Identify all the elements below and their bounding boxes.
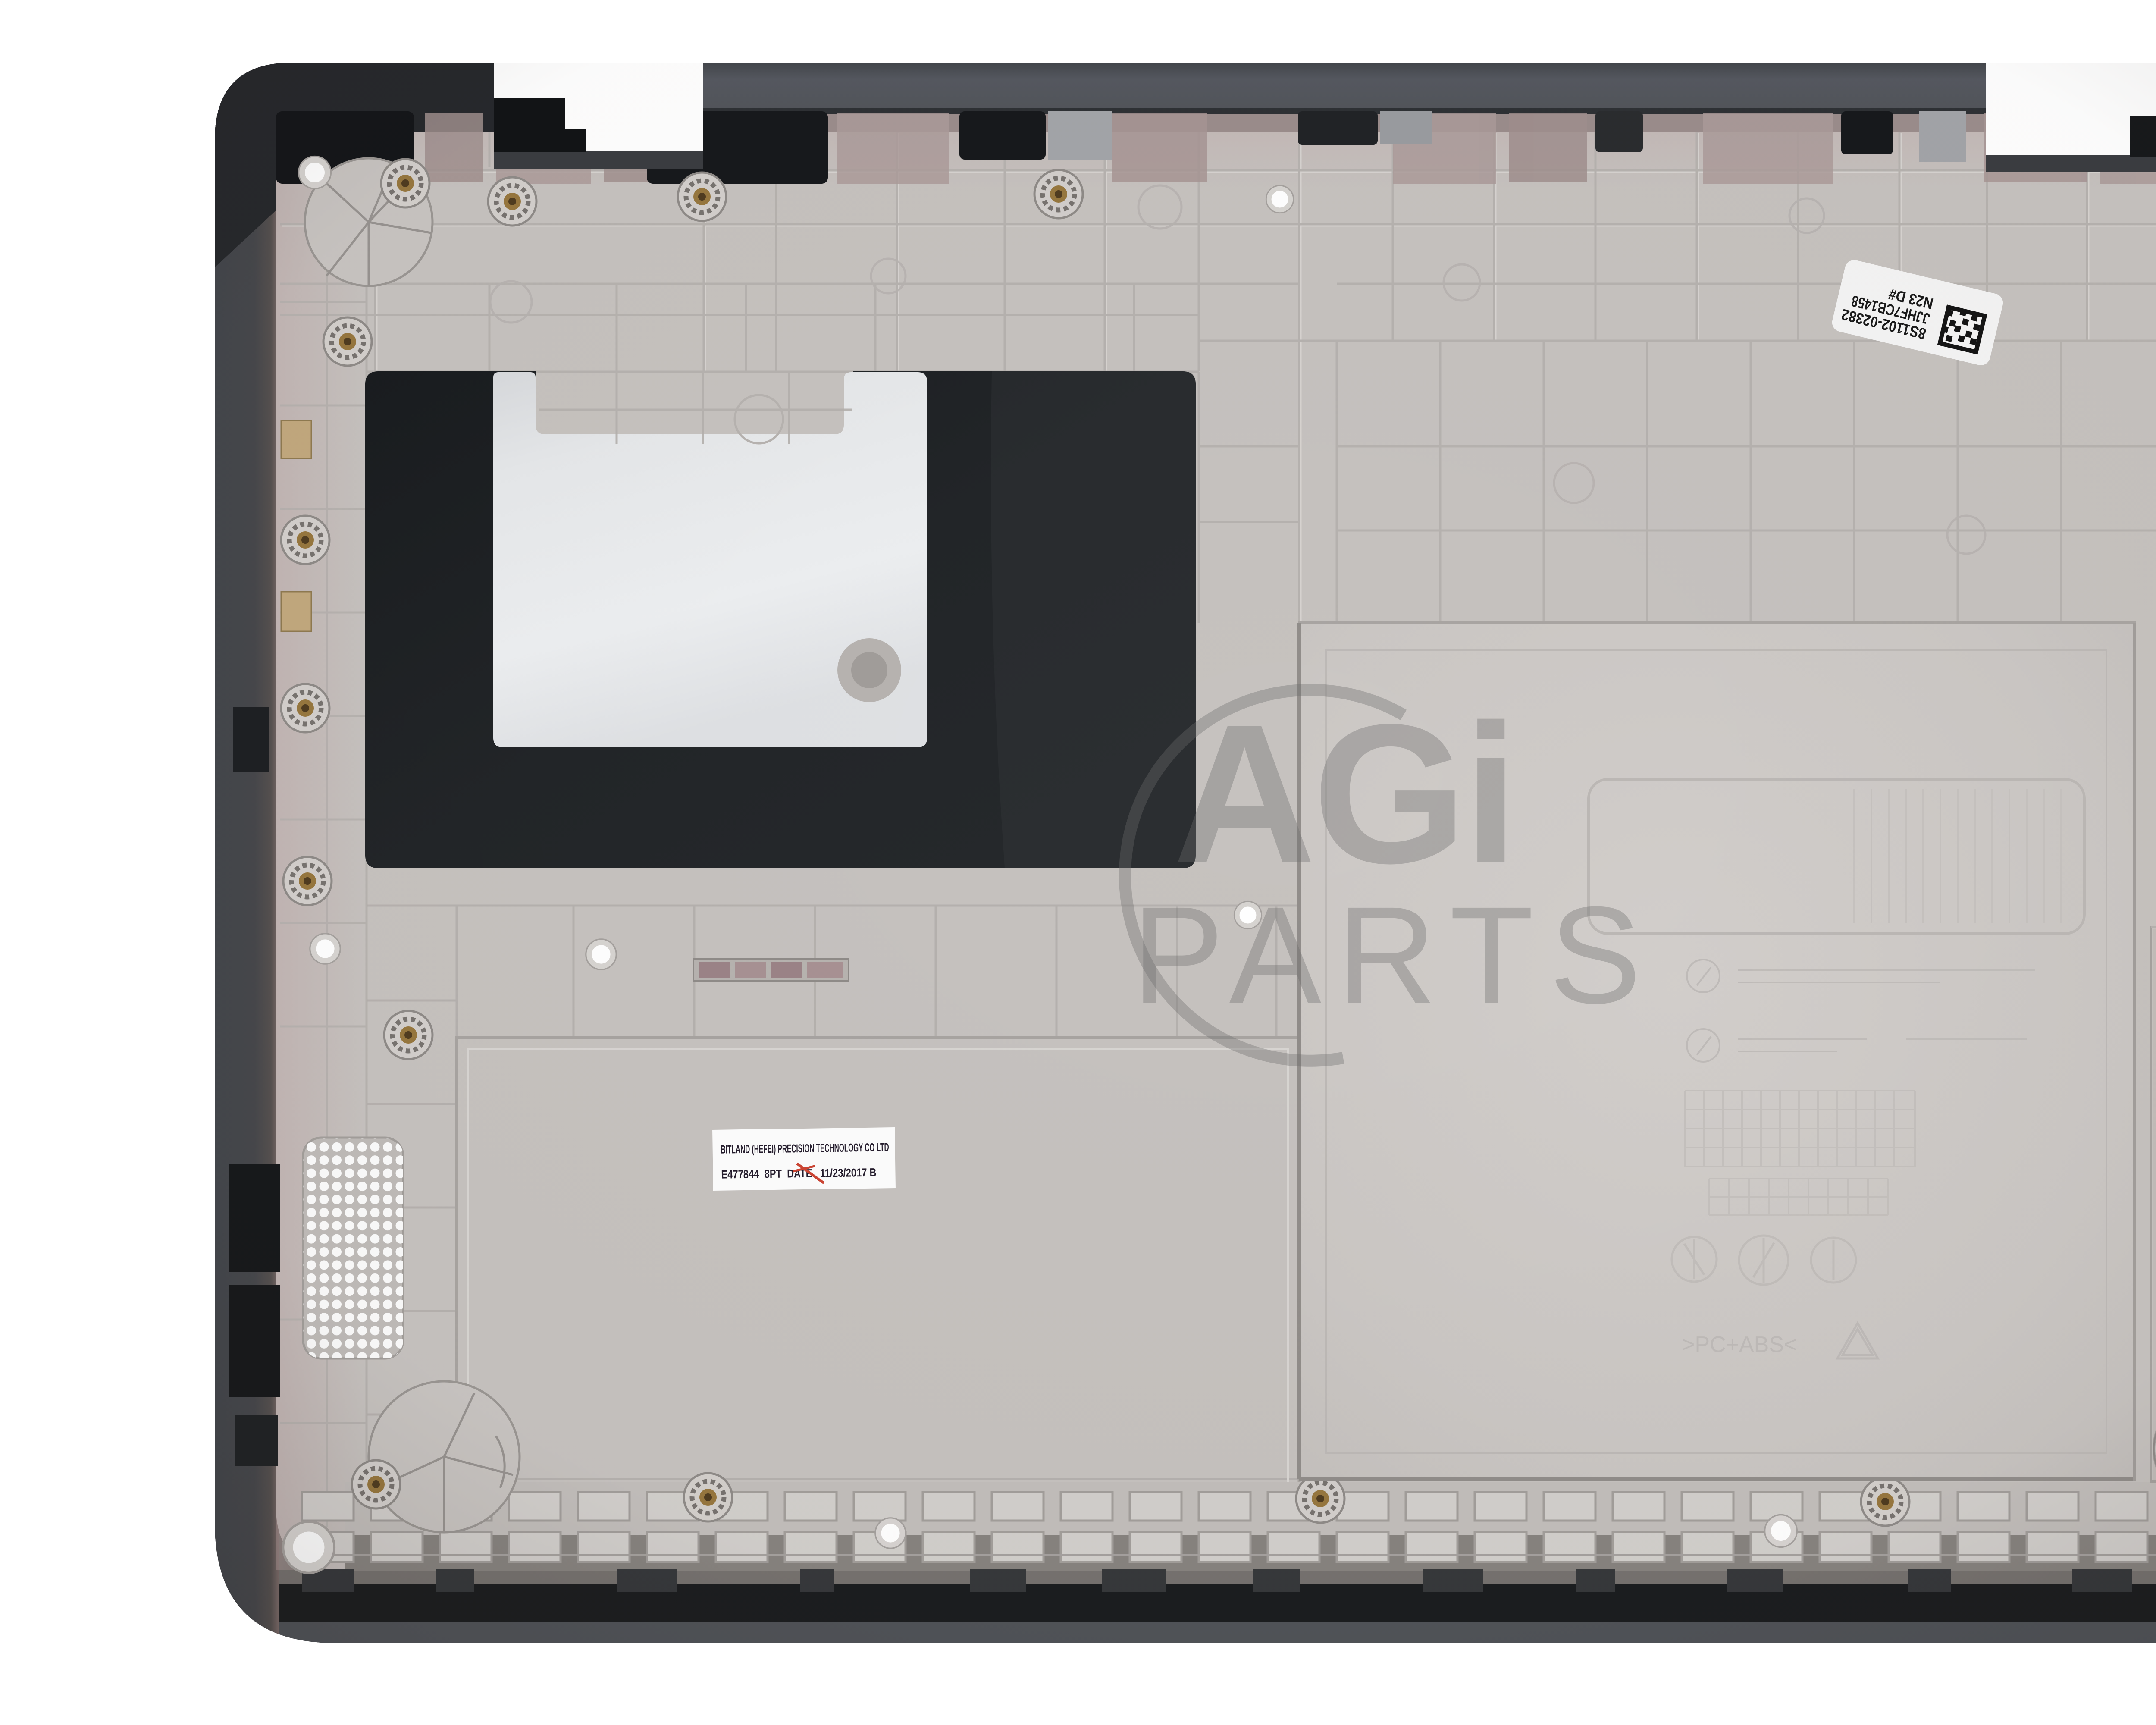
- svg-text:PARTS: PARTS: [1132, 878, 1657, 1032]
